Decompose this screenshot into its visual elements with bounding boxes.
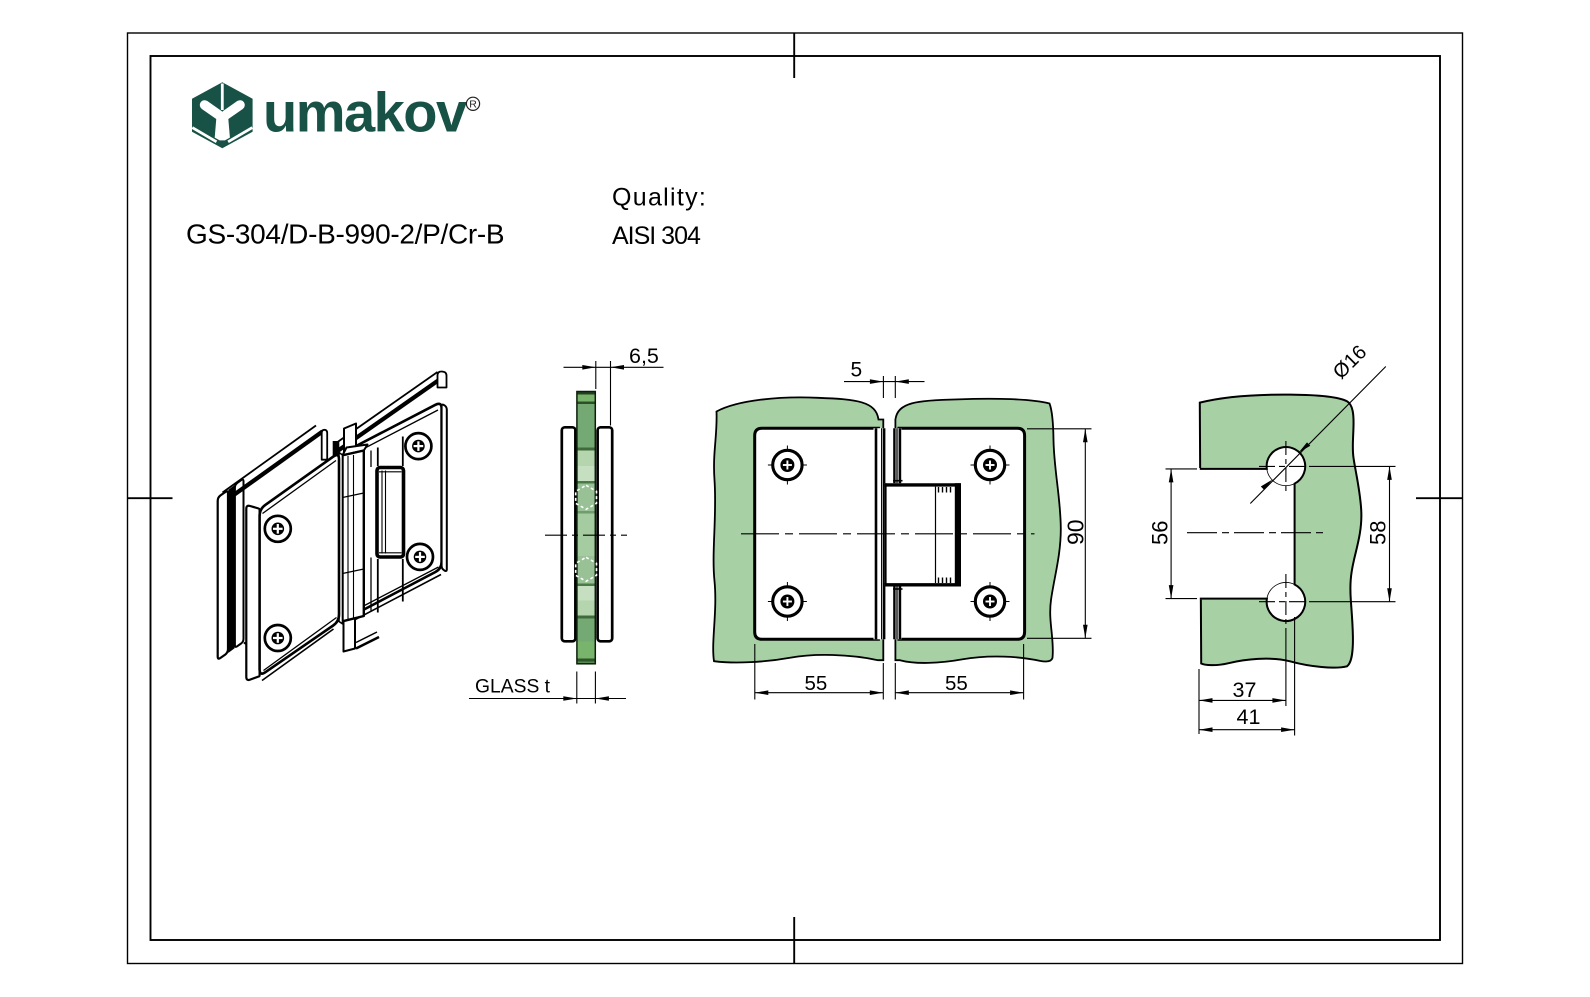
svg-text:58: 58	[1366, 521, 1391, 545]
svg-text:umakov: umakov	[263, 80, 467, 143]
svg-text:GS-304/D-B-990-2/P/Cr-B: GS-304/D-B-990-2/P/Cr-B	[186, 219, 504, 250]
svg-text:56: 56	[1148, 521, 1173, 545]
svg-text:55: 55	[805, 672, 828, 695]
svg-text:41: 41	[1237, 705, 1261, 729]
svg-text:Quality:: Quality:	[612, 184, 707, 212]
svg-text:55: 55	[945, 672, 968, 695]
svg-text:5: 5	[851, 359, 863, 382]
svg-text:GLASS t: GLASS t	[475, 677, 551, 698]
svg-text:90: 90	[1063, 519, 1089, 545]
svg-text:37: 37	[1233, 678, 1257, 702]
svg-text:R: R	[469, 99, 477, 111]
svg-text:6,5: 6,5	[629, 344, 659, 368]
svg-text:AISI 304: AISI 304	[612, 222, 701, 250]
